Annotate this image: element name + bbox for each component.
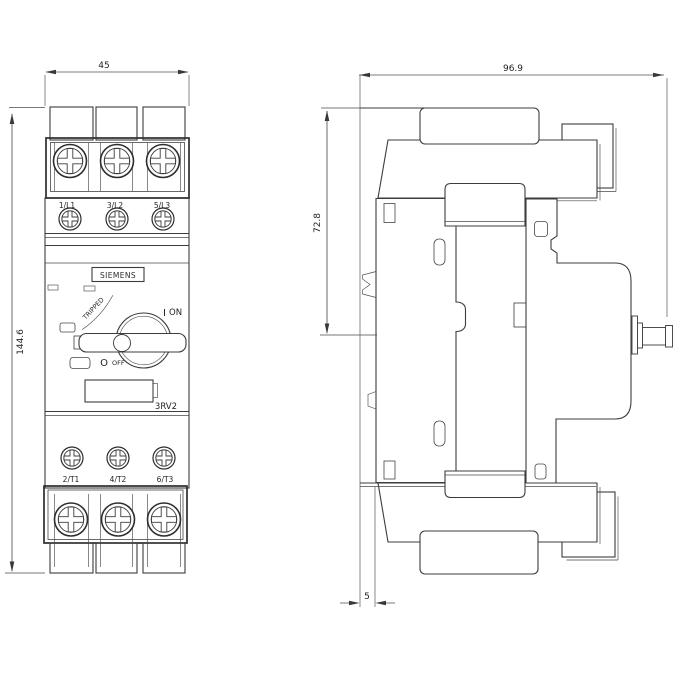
terminal-screw	[55, 503, 88, 536]
dimension-value: 72.8	[313, 213, 323, 233]
terminal-screw	[101, 145, 134, 178]
din-clip-upper	[363, 272, 377, 298]
din-clip-lower	[368, 392, 376, 410]
dimensional-drawing: 1/L1 3/L2 5/L3 SIEMENS TRIPPED	[0, 0, 675, 675]
upper-neck-block	[445, 184, 525, 227]
off-label: OFF	[112, 359, 125, 367]
aux-screw	[61, 447, 83, 469]
lower-neck-block	[445, 471, 525, 498]
top-cover-block	[420, 108, 539, 144]
aux-screw	[152, 208, 174, 230]
on-symbol: I	[163, 308, 166, 319]
terminal-label: 4/T2	[110, 475, 127, 484]
lever-pivot	[114, 335, 131, 352]
bottom-cover-block	[420, 531, 538, 574]
technical-drawing-canvas: 1/L1 3/L2 5/L3 SIEMENS TRIPPED	[0, 0, 675, 675]
terminal-label: 2/T1	[63, 475, 80, 484]
terminal-screw	[147, 145, 180, 178]
dimension-height-144-6: 144.6	[5, 108, 45, 574]
knob-lever	[79, 334, 186, 353]
aux-screw	[153, 447, 175, 469]
bottom-terminal-labels: 2/T1 4/T2 6/T3	[63, 475, 174, 484]
front-view: 1/L1 3/L2 5/L3 SIEMENS TRIPPED	[44, 107, 189, 573]
middle-body	[363, 199, 466, 483]
bottom-terminal-tabs	[50, 543, 185, 573]
dimension-height-72-8: 72.8	[313, 108, 377, 335]
dimension-value: 5	[364, 592, 370, 602]
model-label: 3RV2	[155, 402, 177, 412]
aux-screw	[106, 208, 128, 230]
terminal-label: 6/T3	[157, 475, 174, 484]
dimension-value: 96.9	[503, 64, 523, 74]
dimension-value: 45	[98, 61, 109, 71]
brand-label: SIEMENS	[100, 271, 136, 280]
terminal-screw	[148, 503, 181, 536]
terminal-screw	[54, 145, 87, 178]
side-view	[360, 108, 673, 574]
aux-screw	[59, 208, 81, 230]
aux-screw	[107, 447, 129, 469]
dimension-width-45: 45	[45, 61, 189, 106]
on-marking: I ON	[163, 308, 182, 319]
front-body	[526, 199, 631, 483]
rotary-shaft	[632, 316, 673, 354]
dimension-value: 144.6	[16, 329, 26, 355]
bottom-terminal-block	[44, 486, 187, 567]
front-body-tab	[514, 303, 527, 327]
off-symbol: O	[100, 358, 108, 369]
top-terminal-block	[46, 138, 189, 198]
top-terminal-tabs	[50, 107, 185, 140]
terminal-screw	[102, 503, 135, 536]
on-label: ON	[169, 308, 182, 318]
